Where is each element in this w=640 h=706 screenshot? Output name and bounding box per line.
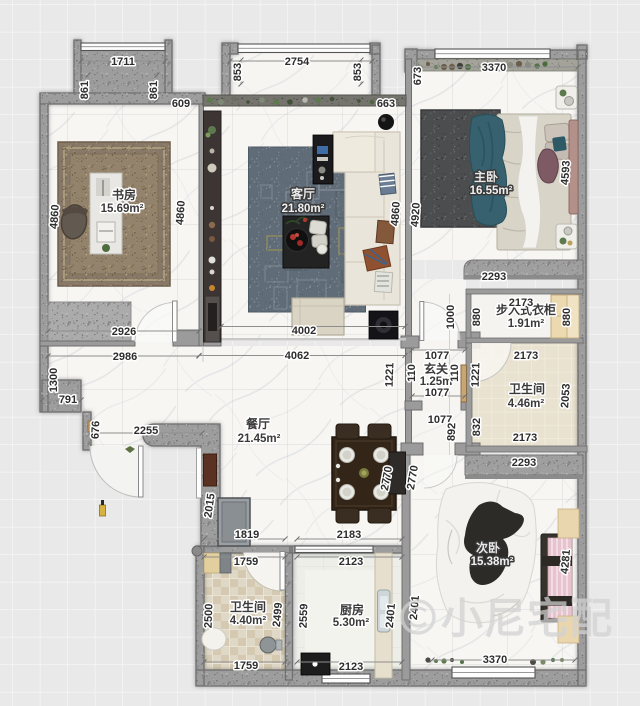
svg-text:2754: 2754 — [285, 56, 310, 68]
svg-text:卫生间: 卫生间 — [509, 381, 545, 396]
svg-text:1.91m²: 1.91m² — [508, 318, 545, 330]
svg-text:4.46m²: 4.46m² — [508, 398, 545, 410]
svg-text:2293: 2293 — [512, 457, 536, 469]
svg-text:676: 676 — [90, 421, 103, 440]
svg-text:2255: 2255 — [134, 425, 158, 437]
svg-text:1077: 1077 — [425, 350, 449, 362]
svg-text:663: 663 — [377, 98, 395, 110]
svg-text:16.55m²: 16.55m² — [470, 185, 513, 197]
svg-text:3370: 3370 — [482, 62, 506, 74]
svg-text:853: 853 — [352, 63, 364, 81]
svg-text:880: 880 — [471, 308, 483, 326]
svg-text:4860: 4860 — [48, 204, 62, 229]
svg-text:791: 791 — [59, 394, 77, 406]
svg-text:2183: 2183 — [337, 529, 361, 541]
svg-text:2500: 2500 — [203, 603, 216, 628]
svg-text:892: 892 — [446, 423, 459, 442]
svg-text:880: 880 — [561, 308, 573, 326]
svg-text:21.80m²: 21.80m² — [282, 203, 325, 215]
svg-text:1000: 1000 — [445, 305, 457, 329]
svg-text:4920: 4920 — [409, 202, 423, 227]
svg-text:2173: 2173 — [514, 350, 538, 362]
svg-text:1759: 1759 — [234, 556, 258, 568]
svg-text:110: 110 — [449, 364, 461, 382]
svg-text:2986: 2986 — [113, 351, 137, 363]
svg-text:1221: 1221 — [384, 362, 397, 387]
svg-text:2173: 2173 — [509, 297, 533, 309]
svg-text:4281: 4281 — [559, 549, 573, 574]
svg-text:15.69m²: 15.69m² — [101, 203, 144, 215]
svg-text:2926: 2926 — [112, 326, 136, 338]
svg-text:832: 832 — [471, 418, 483, 436]
svg-text:861: 861 — [148, 81, 160, 99]
svg-text:5.30m²: 5.30m² — [333, 617, 370, 629]
svg-text:2401: 2401 — [384, 603, 398, 628]
svg-text:1711: 1711 — [111, 56, 135, 68]
svg-text:609: 609 — [172, 98, 190, 110]
svg-text:卫生间: 卫生间 — [230, 599, 266, 614]
svg-text:2293: 2293 — [482, 271, 506, 283]
svg-text:玄关: 玄关 — [424, 361, 448, 376]
svg-text:2053: 2053 — [559, 383, 573, 408]
svg-text:餐厅: 餐厅 — [246, 416, 270, 431]
svg-text:1077: 1077 — [425, 387, 449, 399]
svg-text:2173: 2173 — [513, 432, 537, 444]
svg-text:次卧: 次卧 — [476, 540, 500, 555]
svg-text:673: 673 — [412, 67, 424, 85]
svg-text:2123: 2123 — [339, 556, 363, 568]
svg-text:21.45m²: 21.45m² — [238, 433, 281, 445]
svg-text:2123: 2123 — [339, 661, 363, 673]
svg-text:4.40m²: 4.40m² — [230, 615, 267, 627]
svg-text:1221: 1221 — [470, 362, 483, 387]
svg-text:1759: 1759 — [234, 660, 258, 672]
svg-text:4860: 4860 — [174, 200, 188, 225]
svg-text:书房: 书房 — [112, 187, 136, 202]
svg-text:861: 861 — [79, 81, 91, 99]
svg-text:小尼宅配: 小尼宅配 — [441, 595, 613, 642]
svg-text:3370: 3370 — [483, 654, 507, 666]
svg-text:4002: 4002 — [292, 325, 316, 337]
svg-text:4593: 4593 — [559, 160, 573, 185]
svg-text:853: 853 — [232, 63, 244, 81]
svg-text:主卧: 主卧 — [474, 169, 498, 184]
svg-text:客厅: 客厅 — [290, 186, 315, 201]
svg-text:2499: 2499 — [271, 602, 285, 627]
svg-text:2559: 2559 — [298, 603, 311, 628]
svg-text:厨房: 厨房 — [340, 602, 364, 617]
svg-text:1300: 1300 — [48, 368, 60, 392]
svg-text:4062: 4062 — [285, 350, 309, 362]
svg-text:1819: 1819 — [235, 529, 259, 541]
svg-text:110: 110 — [406, 364, 418, 382]
svg-text:15.38m²: 15.38m² — [471, 556, 514, 568]
svg-text:4860: 4860 — [389, 201, 403, 226]
